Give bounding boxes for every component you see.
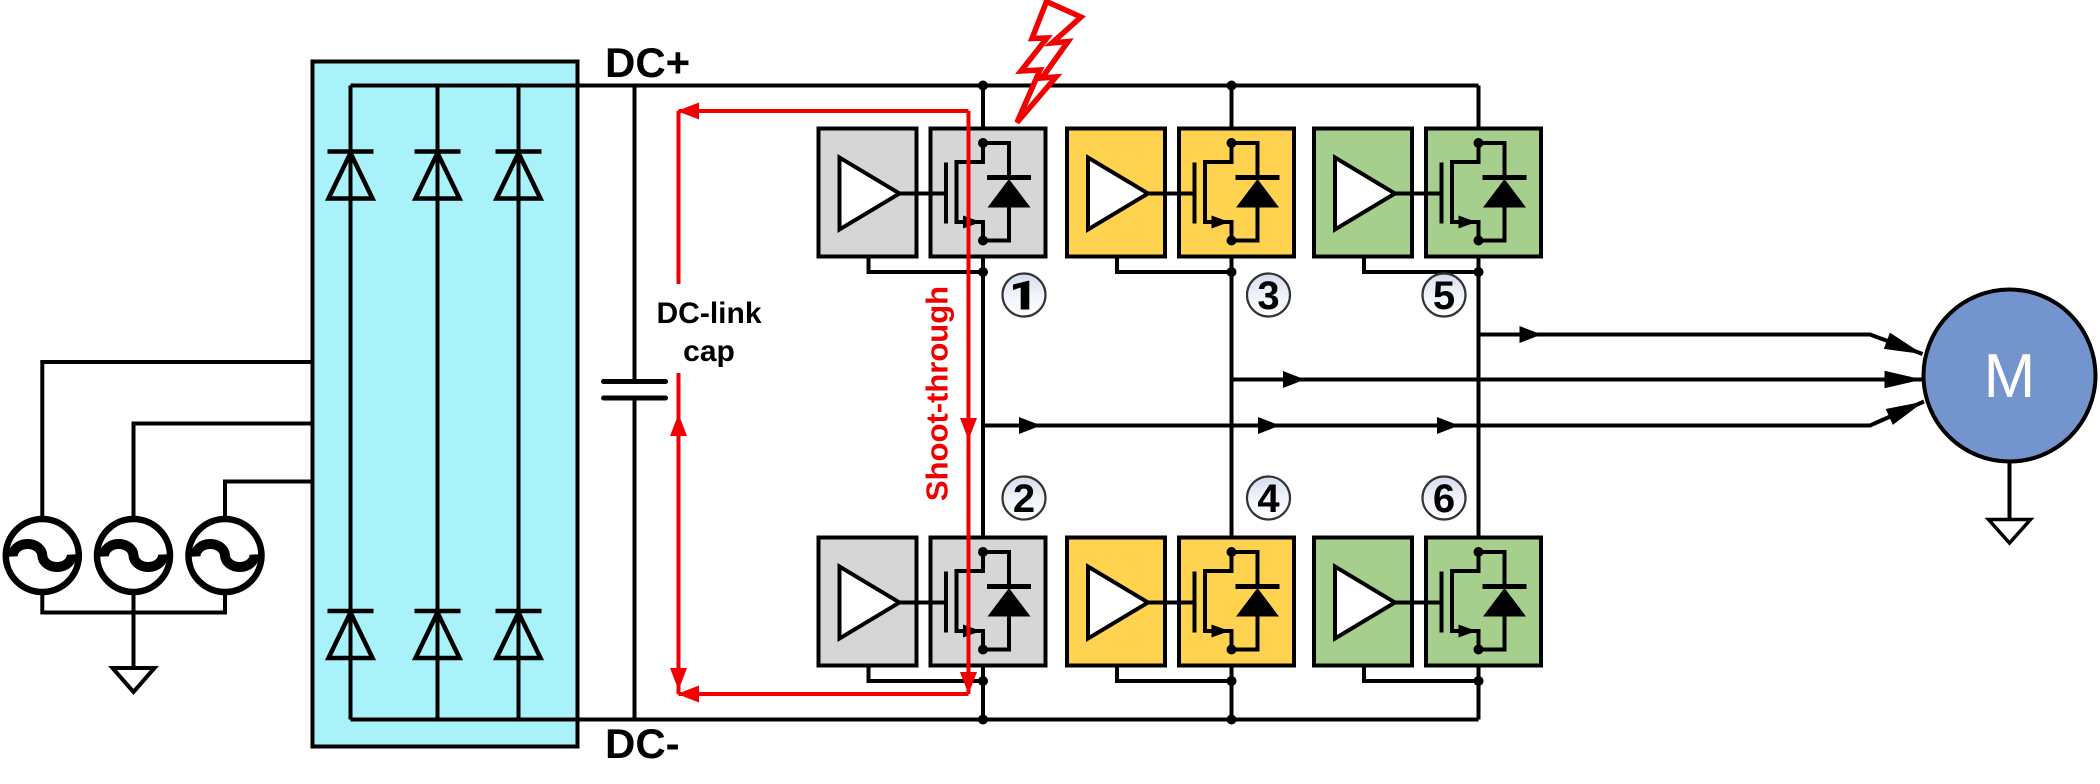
svg-text:3: 3 xyxy=(1257,274,1279,318)
svg-text:M: M xyxy=(1984,342,2036,411)
svg-text:cap: cap xyxy=(683,335,735,368)
svg-text:DC-link: DC-link xyxy=(657,297,762,330)
svg-text:4: 4 xyxy=(1257,477,1280,521)
svg-text:Shoot-through: Shoot-through xyxy=(920,286,955,501)
svg-text:5: 5 xyxy=(1433,274,1455,318)
svg-text:2: 2 xyxy=(1013,477,1035,521)
svg-text:6: 6 xyxy=(1433,477,1455,521)
svg-text:DC+: DC+ xyxy=(605,39,690,86)
svg-text:DC-: DC- xyxy=(605,720,680,767)
